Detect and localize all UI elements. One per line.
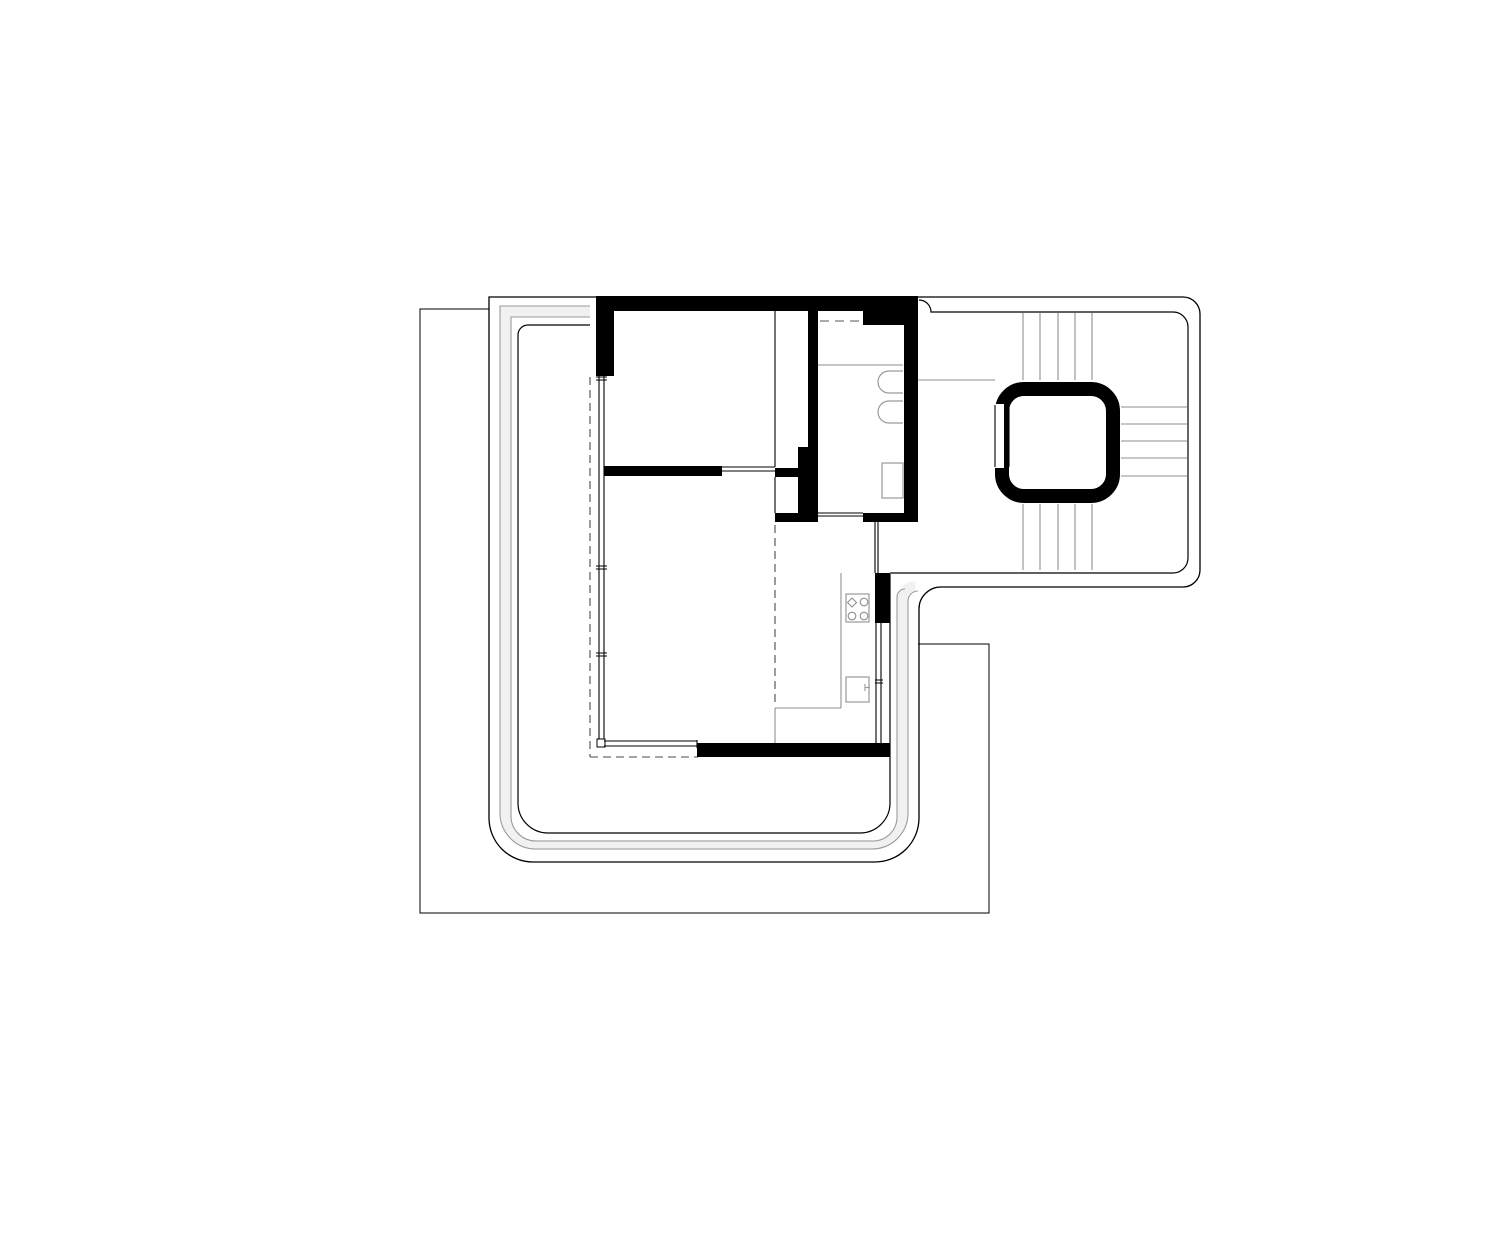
toilet-fixture-1	[878, 371, 903, 393]
terrace-band-fill	[506, 312, 916, 846]
wall-bath-west-lower	[798, 447, 818, 522]
floor-plan-canvas	[0, 0, 1500, 1243]
terrace-band-inner-edge	[511, 317, 905, 841]
wall-bath-south	[863, 513, 918, 522]
apartment-outer-boundary	[489, 297, 1200, 862]
wall-west-upper	[596, 296, 614, 376]
wall-bath-east	[904, 296, 918, 522]
terrace-band-outer-edge	[500, 306, 918, 849]
wall-bath-west	[808, 311, 818, 447]
toilet-fixture-2	[878, 401, 903, 423]
wall-duct-top-bar	[775, 468, 798, 477]
wall-duct-bottom-bar	[775, 513, 818, 522]
elevator-shaft	[1002, 389, 1113, 496]
floor-plan-page	[0, 0, 1500, 1243]
wall-living-north	[604, 466, 722, 476]
window-sill-box	[597, 739, 605, 747]
wall-kitchen-east	[875, 573, 890, 623]
wall-bath-north-thick	[863, 311, 904, 325]
wall-south	[697, 743, 890, 757]
bath-sink-fixture	[882, 463, 903, 498]
wall-north	[596, 296, 918, 311]
